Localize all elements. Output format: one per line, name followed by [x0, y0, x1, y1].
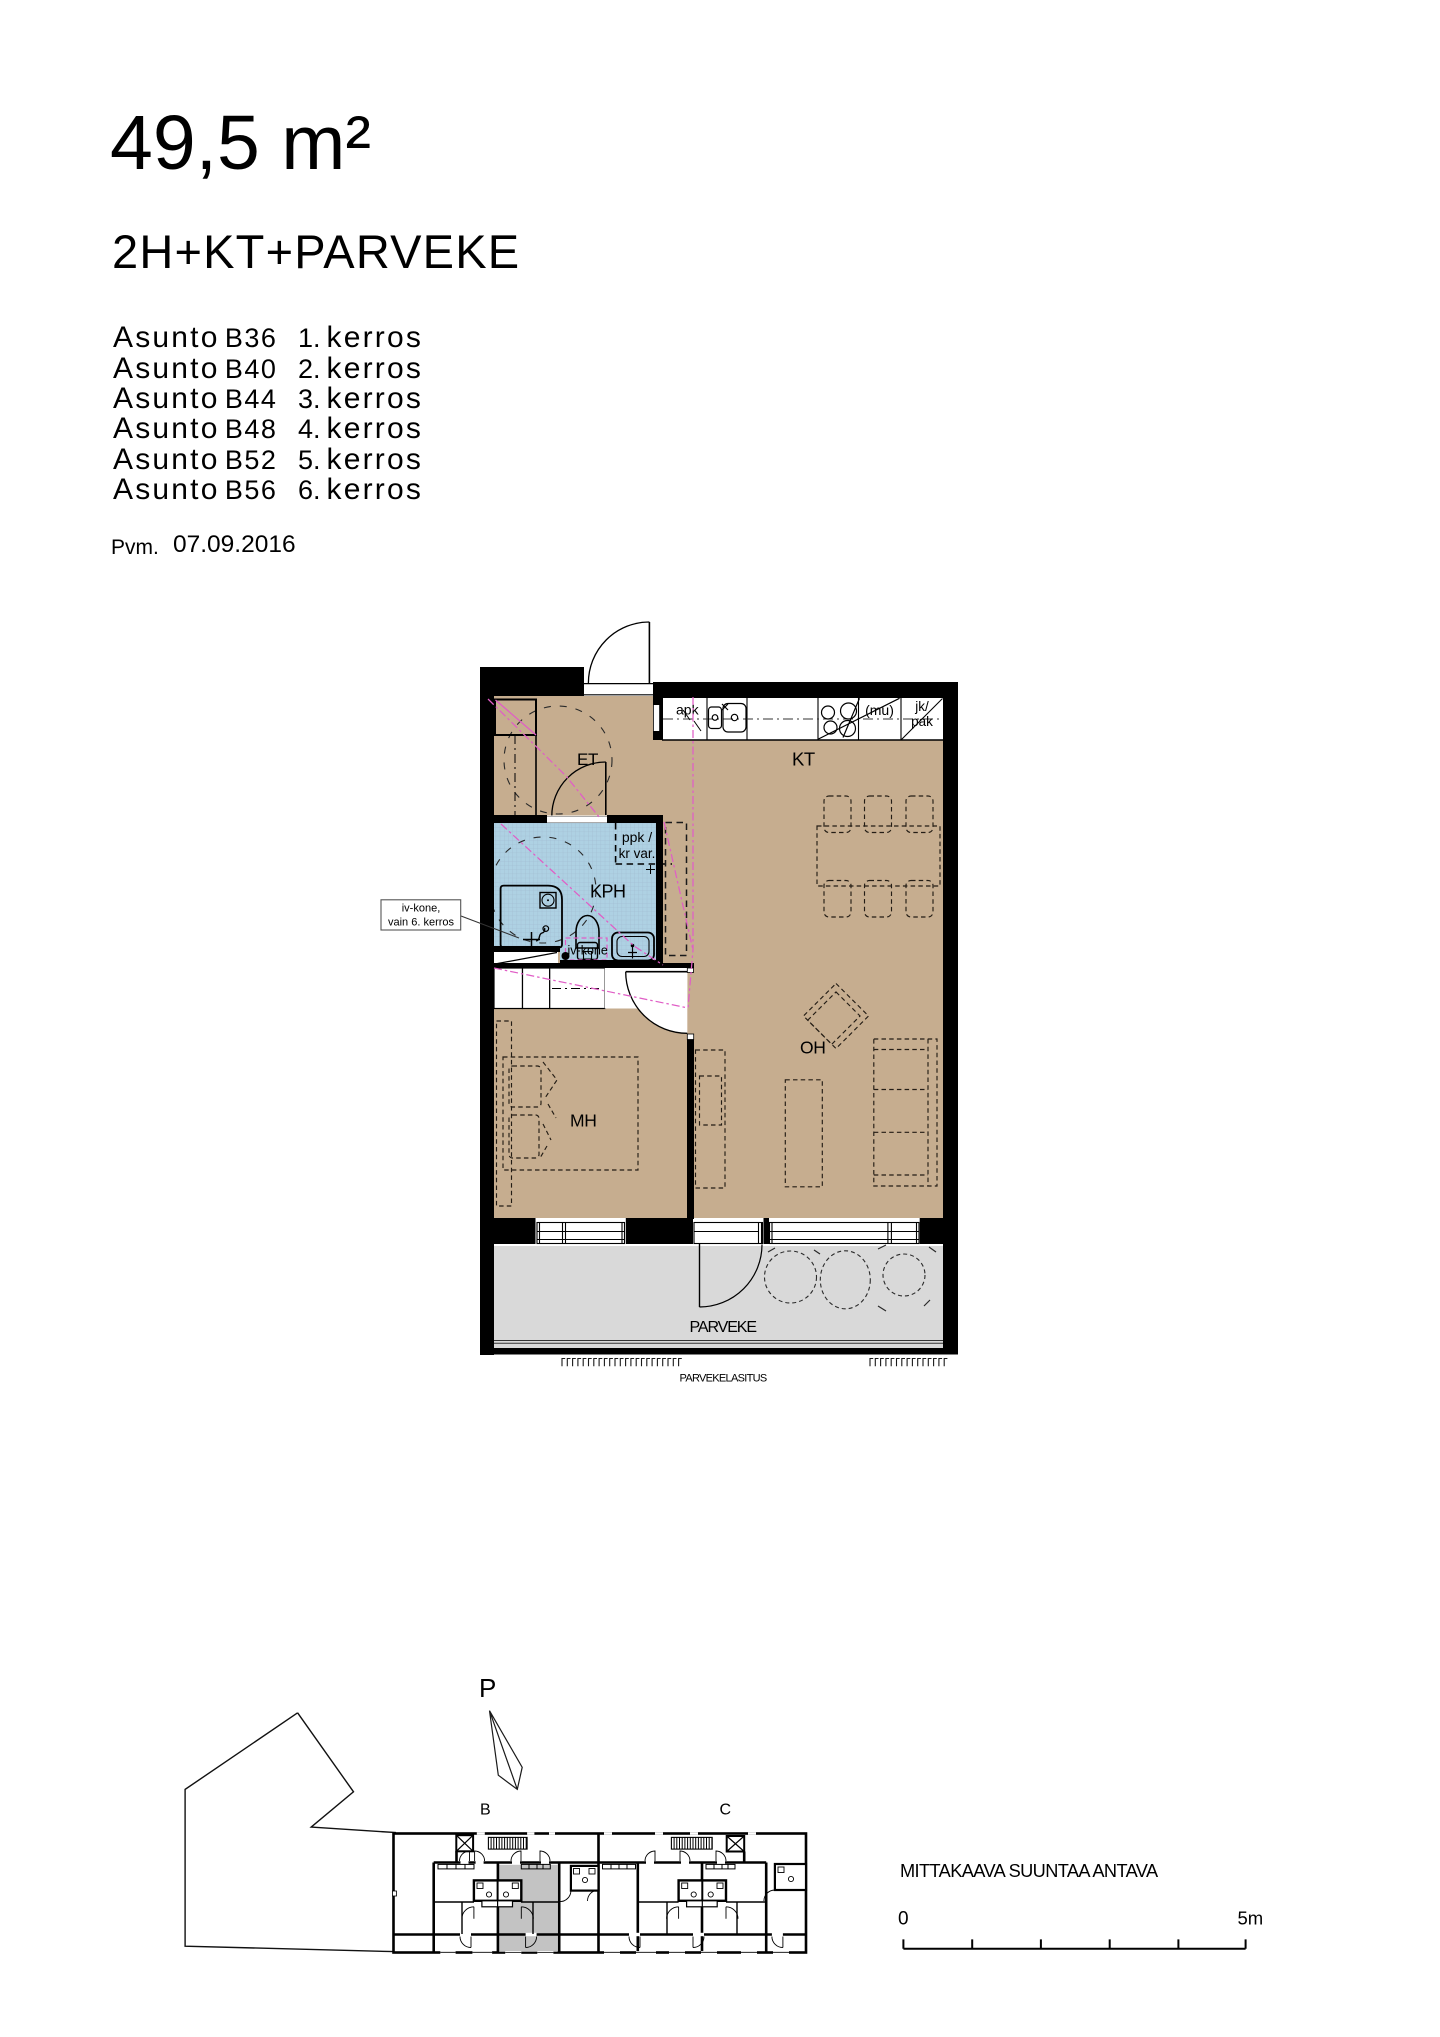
svg-text:iv-kone,: iv-kone,	[402, 903, 441, 915]
svg-text:PARVEKELASITUS: PARVEKELASITUS	[680, 1372, 767, 1384]
svg-text:KPH: KPH	[590, 882, 626, 902]
svg-text:pak: pak	[911, 714, 933, 729]
svg-text:5m: 5m	[1238, 1908, 1264, 1929]
svg-text:MH: MH	[570, 1111, 597, 1131]
svg-text:jk/: jk/	[914, 699, 929, 714]
svg-text:KT: KT	[792, 748, 815, 769]
svg-text:P: P	[479, 1673, 496, 1703]
svg-text:C: C	[720, 1802, 732, 1819]
svg-text:MITTAKAAVA SUUNTAA ANTAVA: MITTAKAAVA SUUNTAA ANTAVA	[900, 1861, 1159, 1881]
svg-text:ppk /: ppk /	[622, 829, 652, 845]
svg-text:apk: apk	[676, 702, 700, 718]
svg-text:PARVEKE: PARVEKE	[690, 1319, 757, 1336]
svg-text:0: 0	[898, 1909, 909, 1930]
svg-text:iv-kone: iv-kone	[568, 944, 608, 958]
svg-text:(mu): (mu)	[865, 702, 894, 718]
svg-text:kr var.: kr var.	[619, 846, 656, 861]
svg-text:B: B	[480, 1802, 491, 1819]
svg-text:vain 6. kerros: vain 6. kerros	[388, 917, 455, 929]
svg-text:ET: ET	[577, 750, 598, 769]
svg-text:OH: OH	[800, 1038, 826, 1058]
